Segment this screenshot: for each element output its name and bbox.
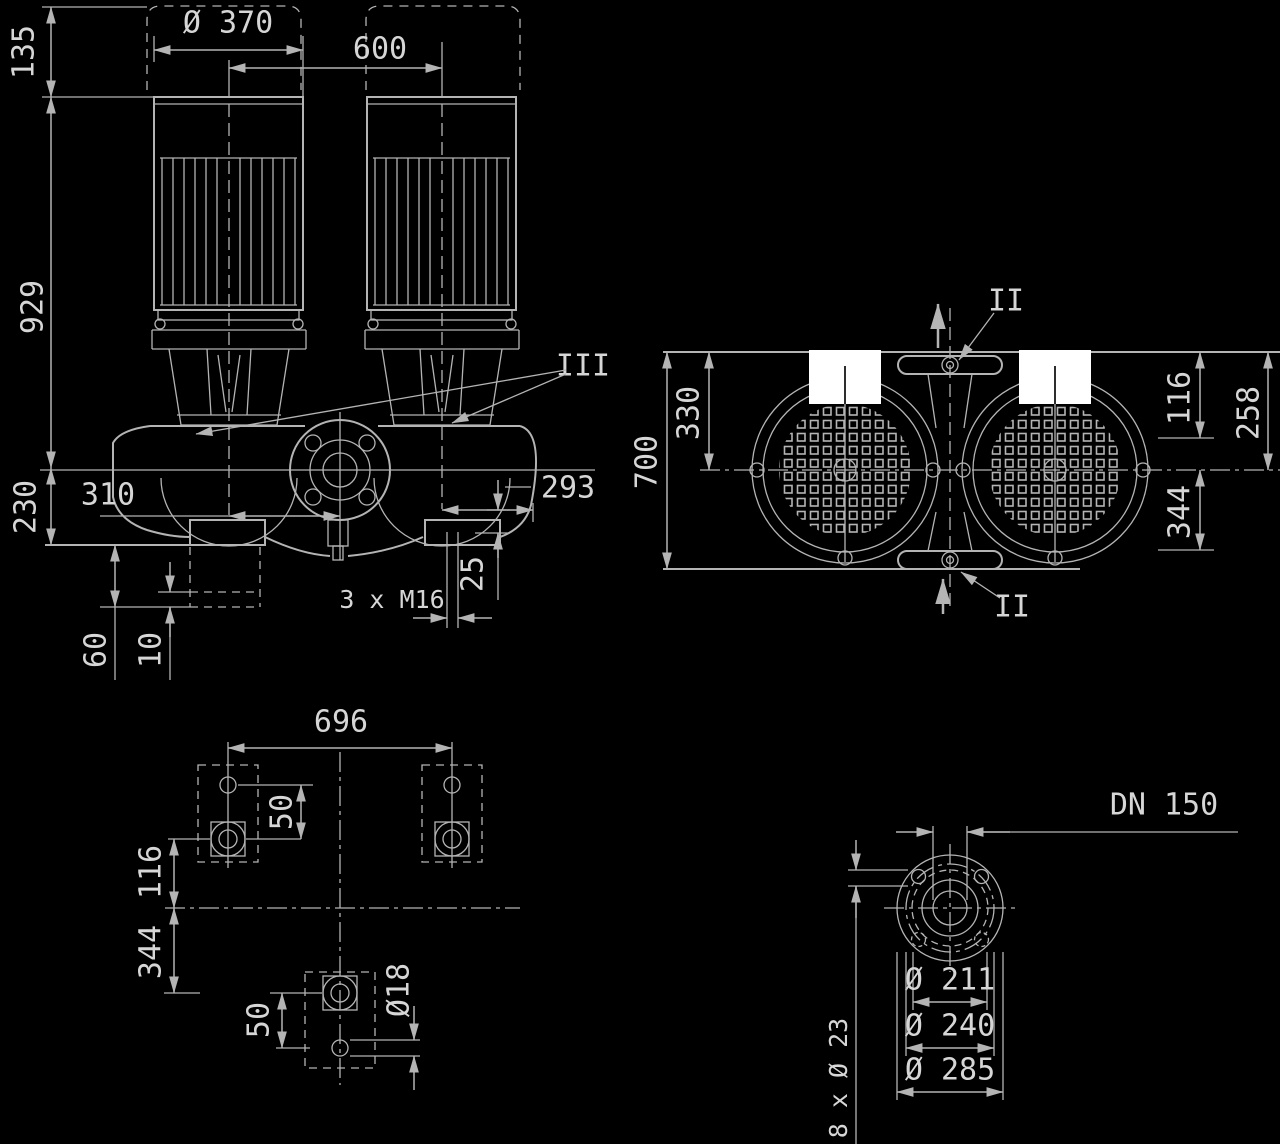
dim-hole-offset-bottom: 50 — [242, 1002, 277, 1038]
dim-flange-outer: Ø 285 — [905, 1053, 995, 1088]
dim-bolt-span: 696 — [314, 705, 368, 740]
section-label-seal: III — [556, 349, 610, 384]
flange-circles — [884, 844, 1016, 972]
dim-nominal-size: DN 150 — [1110, 788, 1218, 823]
foundation-dimensions: 696 50 116 344 50 Ø18 — [134, 705, 453, 1091]
dim-depth-total: 700 — [630, 435, 665, 489]
dim-center-to-right-motor: 293 — [541, 471, 595, 506]
flange-detail-view: DN 150 8 x Ø 23 Ø 211 Ø 240 Ø 285 — [824, 788, 1238, 1144]
dim-bolt-holes: 8 x Ø 23 — [824, 1018, 853, 1138]
dim-hole-offset-top: 50 — [265, 794, 300, 830]
pump-dimensional-drawing: 135 929 230 Ø 370 600 310 293 25 — [0, 0, 1280, 1144]
dim-edge-to-axis-right: 258 — [1232, 386, 1267, 440]
dim-foundation-height: 60 — [79, 632, 114, 668]
plan-view-dimensions: 700 330 116 258 344 II II — [630, 284, 1269, 625]
motor-left — [154, 97, 303, 515]
dim-axis-to-foot: 344 — [1163, 485, 1198, 539]
motor-right — [367, 97, 516, 509]
dim-axis-to-rear-foot: 344 — [134, 925, 169, 979]
flange-dimensions: DN 150 8 x Ø 23 Ø 211 Ø 240 Ø 285 — [824, 788, 1238, 1144]
foundation-block — [190, 547, 260, 607]
dim-height-total: 929 — [16, 280, 51, 334]
fan-cover-right — [956, 377, 1150, 565]
drain-plug — [328, 520, 348, 560]
dim-grout-thickness: 10 — [134, 632, 169, 668]
dim-anchor-hole-diameter: Ø18 — [382, 963, 417, 1017]
dim-bolt-circle: Ø 240 — [905, 1009, 995, 1044]
plan-view: 700 330 116 258 344 II II — [630, 284, 1280, 625]
dim-raised-face: Ø 211 — [905, 963, 995, 998]
foundation-plan-view: 696 50 116 344 50 Ø18 — [134, 705, 521, 1091]
dim-axis-to-base: 230 — [9, 480, 44, 534]
lantern-left — [152, 310, 306, 425]
dim-center-to-left-motor: 310 — [81, 478, 135, 513]
dim-axis-to-cover: 116 — [1163, 371, 1198, 425]
dim-edge-to-axis: 330 — [672, 386, 707, 440]
lantern-right — [365, 310, 519, 425]
dim-motor-diameter: Ø 370 — [183, 6, 273, 41]
dim-feet-to-axis: 116 — [134, 845, 169, 899]
dim-foundation-bolts: 3 x M16 — [339, 585, 444, 614]
dim-motor-spacing: 600 — [353, 32, 407, 67]
fan-cover-left — [750, 377, 940, 565]
dim-base-step: 25 — [456, 556, 491, 592]
section-label-bottom: II — [994, 590, 1030, 625]
dim-lift-clearance: 135 — [7, 25, 42, 79]
front-view: 135 929 230 Ø 370 600 310 293 25 — [7, 6, 611, 681]
